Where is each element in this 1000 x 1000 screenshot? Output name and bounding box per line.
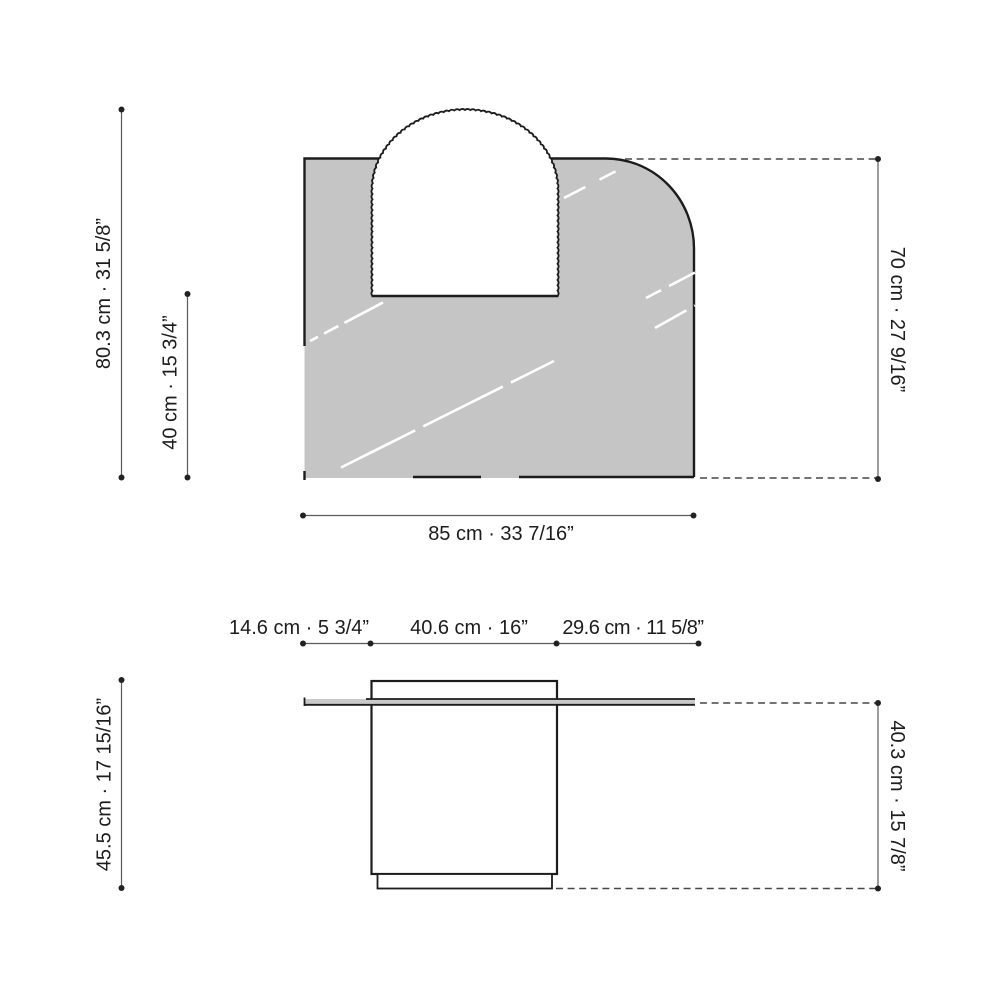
svg-text:45.5 cm · 17 15/16”: 45.5 cm · 17 15/16”: [94, 698, 116, 871]
svg-text:29.6 cm · 11 5/8”: 29.6 cm · 11 5/8”: [562, 617, 703, 639]
svg-text:40.6 cm · 16”: 40.6 cm · 16”: [410, 617, 528, 639]
svg-text:85 cm · 33 7/16”: 85 cm · 33 7/16”: [428, 523, 574, 545]
svg-text:40.3 cm · 15 7/8”: 40.3 cm · 15 7/8”: [886, 720, 908, 871]
svg-text:80.3 cm · 31 5/8”: 80.3 cm · 31 5/8”: [93, 218, 115, 369]
svg-text:40 cm · 15 3/4”: 40 cm · 15 3/4”: [160, 315, 182, 450]
svg-text:14.6 cm · 5 3/4”: 14.6 cm · 5 3/4”: [229, 617, 369, 639]
svg-text:70 cm · 27 9/16”: 70 cm · 27 9/16”: [886, 247, 908, 393]
